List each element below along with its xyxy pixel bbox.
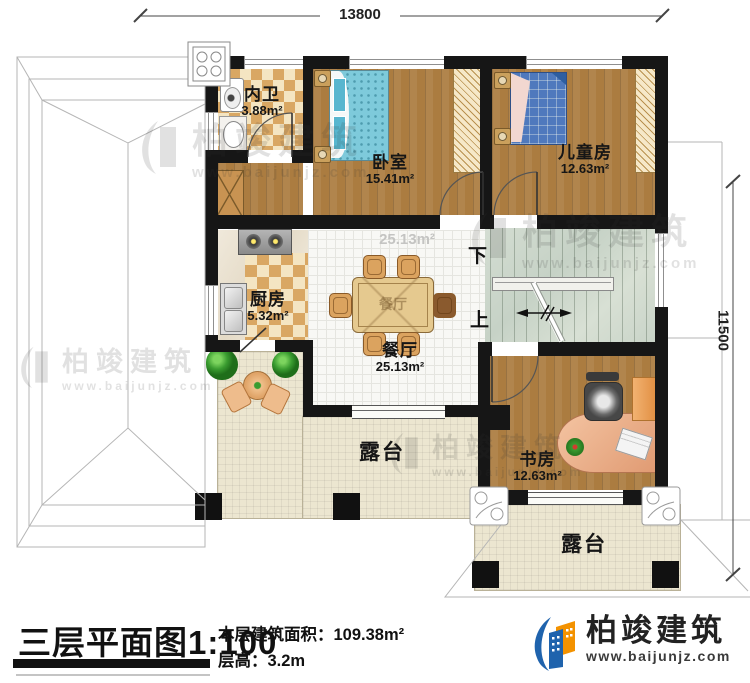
window-bathroom-top — [244, 56, 310, 69]
window-kids-top — [526, 56, 624, 69]
dining-table-label: 餐厅 — [353, 294, 433, 314]
room-label-kids: 儿童房 12.63m² — [540, 143, 630, 177]
bed-pillow — [333, 116, 346, 150]
drawing-title-text: 三层平面图 — [18, 624, 188, 661]
stove — [238, 229, 292, 255]
room-label-dining: 餐厅 25.13m² — [355, 341, 445, 375]
room-area: 3.88m² — [222, 104, 302, 119]
office-chair — [584, 382, 623, 421]
nightstand — [494, 128, 511, 145]
wall-dining-bottom — [303, 405, 352, 417]
stair-up-label: 上 — [470, 305, 489, 332]
company-logo: 柏竣建筑 www.baijunjz.com — [530, 615, 731, 671]
room-name: 厨房 — [228, 290, 308, 309]
terrace-left-floor-b — [303, 417, 478, 518]
window-bedroom-top — [349, 56, 446, 69]
room-label-bathroom: 内卫 3.88m² — [222, 85, 302, 119]
room-name: 内卫 — [222, 85, 302, 104]
wall-bathroom-right — [303, 56, 313, 150]
window-kitchen-left — [205, 285, 218, 337]
floor-area-value: 109.38m² — [334, 626, 405, 644]
wardrobe-bedroom — [453, 67, 482, 173]
nightstand — [314, 146, 331, 163]
watermark-logo-icon — [138, 119, 184, 175]
sliding-window-study-terrace — [528, 492, 623, 505]
bed-pillow — [333, 78, 346, 112]
room-label-study: 书房 12.63m² — [500, 450, 575, 484]
terrace-plant — [272, 351, 299, 378]
dining-chair — [363, 255, 386, 279]
wall-right — [655, 307, 668, 505]
column — [472, 561, 499, 588]
roof-outline-left — [17, 57, 205, 547]
window-stairs-right — [655, 233, 668, 309]
room-name: 餐厅 — [355, 341, 445, 360]
floor-info: 本层建筑面积：109.38m² 层高：3.2m — [218, 623, 404, 674]
dining-table: 餐厅 — [352, 277, 434, 333]
wall-stairs-bottom — [478, 342, 492, 356]
wall-study-left — [478, 356, 490, 505]
wall-kitchen-bottom — [205, 340, 240, 352]
watermark-text: 柏竣建筑 www.baijunjz.com — [62, 340, 214, 393]
dimension-right: 11500 — [715, 286, 732, 376]
dining-chair — [397, 255, 420, 279]
floor-area-line: 本层建筑面积：109.38m² — [218, 623, 404, 649]
room-area-ghost: 25.13m² — [362, 231, 452, 248]
room-label-kitchen: 厨房 5.32m² — [228, 290, 308, 324]
monitor — [586, 372, 619, 381]
column — [333, 493, 360, 520]
wall-bathroom-bottom — [292, 150, 313, 163]
handrail-line — [495, 282, 611, 283]
floor-height-value: 3.2m — [268, 652, 306, 670]
bed-kids — [510, 72, 567, 145]
company-logo-text: 柏竣建筑 www.baijunjz.com — [586, 615, 731, 664]
wall-rooms-divider — [480, 56, 492, 229]
room-name: 书房 — [500, 450, 575, 469]
floor-height-line: 层高：3.2m — [218, 649, 404, 675]
nightstand — [314, 70, 331, 87]
room-label-terrace-left: 露台 — [347, 441, 417, 465]
column — [195, 493, 222, 520]
company-brand: 柏竣建筑 — [586, 615, 731, 648]
wall-right — [655, 56, 668, 233]
bed-corner-fold — [552, 73, 566, 85]
room-area: 12.63m² — [540, 162, 630, 177]
wall-dining-bottom — [445, 405, 478, 417]
title-underline-thin — [16, 674, 210, 676]
title-underline-bar — [13, 659, 210, 668]
wall-stairs-bottom — [538, 342, 668, 356]
bed-double — [329, 70, 389, 161]
floor-plan-canvas: 餐厅 — [0, 0, 750, 683]
room-area: 5.32m² — [228, 309, 308, 324]
watermark-logo-icon — [18, 345, 54, 389]
room-area: 12.63m² — [500, 469, 575, 484]
column — [652, 561, 679, 588]
room-label-bedroom: 卧室 15.41m² — [350, 153, 430, 187]
wall-bedrooms-bottom — [537, 215, 668, 229]
floor-height-label: 层高： — [218, 652, 268, 670]
dining-chair — [329, 293, 352, 318]
room-area: 25.13m² — [355, 360, 445, 375]
room-label-terrace-bottom: 露台 — [549, 533, 619, 557]
room-area: 15.41m² — [350, 172, 430, 187]
terrace-plant — [206, 348, 238, 380]
sliding-door-dining-terrace — [352, 405, 445, 419]
wall-study-bottom — [478, 490, 528, 505]
burner — [246, 234, 261, 249]
burner — [268, 234, 283, 249]
watermark-brand: 柏竣建筑 — [62, 340, 214, 379]
dining-chair — [433, 293, 456, 318]
floor-area-label: 本层建筑面积： — [218, 626, 334, 644]
dimension-top: 13800 — [320, 6, 400, 23]
window-bathroom-left — [205, 112, 218, 152]
sink-basin — [223, 121, 244, 148]
company-logo-icon — [530, 615, 578, 671]
stair-down-label: 下 — [468, 241, 487, 268]
wall-bathroom-bottom — [205, 150, 248, 163]
wall-bedrooms-bottom — [205, 215, 440, 229]
watermark-url: www.baijunjz.com — [62, 379, 214, 393]
bathroom-sink — [219, 116, 247, 152]
stair-handrail — [492, 277, 614, 291]
hall-cabinet — [215, 170, 244, 219]
nightstand — [494, 72, 511, 89]
company-url: www.baijunjz.com — [586, 648, 731, 664]
wall-left — [205, 56, 218, 112]
watermark: 柏竣建筑 www.baijunjz.com — [18, 340, 214, 393]
room-name: 卧室 — [350, 153, 430, 172]
room-name: 儿童房 — [540, 143, 630, 162]
wall-top — [308, 56, 349, 69]
bed-blanket-fold — [511, 73, 530, 142]
wall-study-bottom — [623, 490, 668, 505]
